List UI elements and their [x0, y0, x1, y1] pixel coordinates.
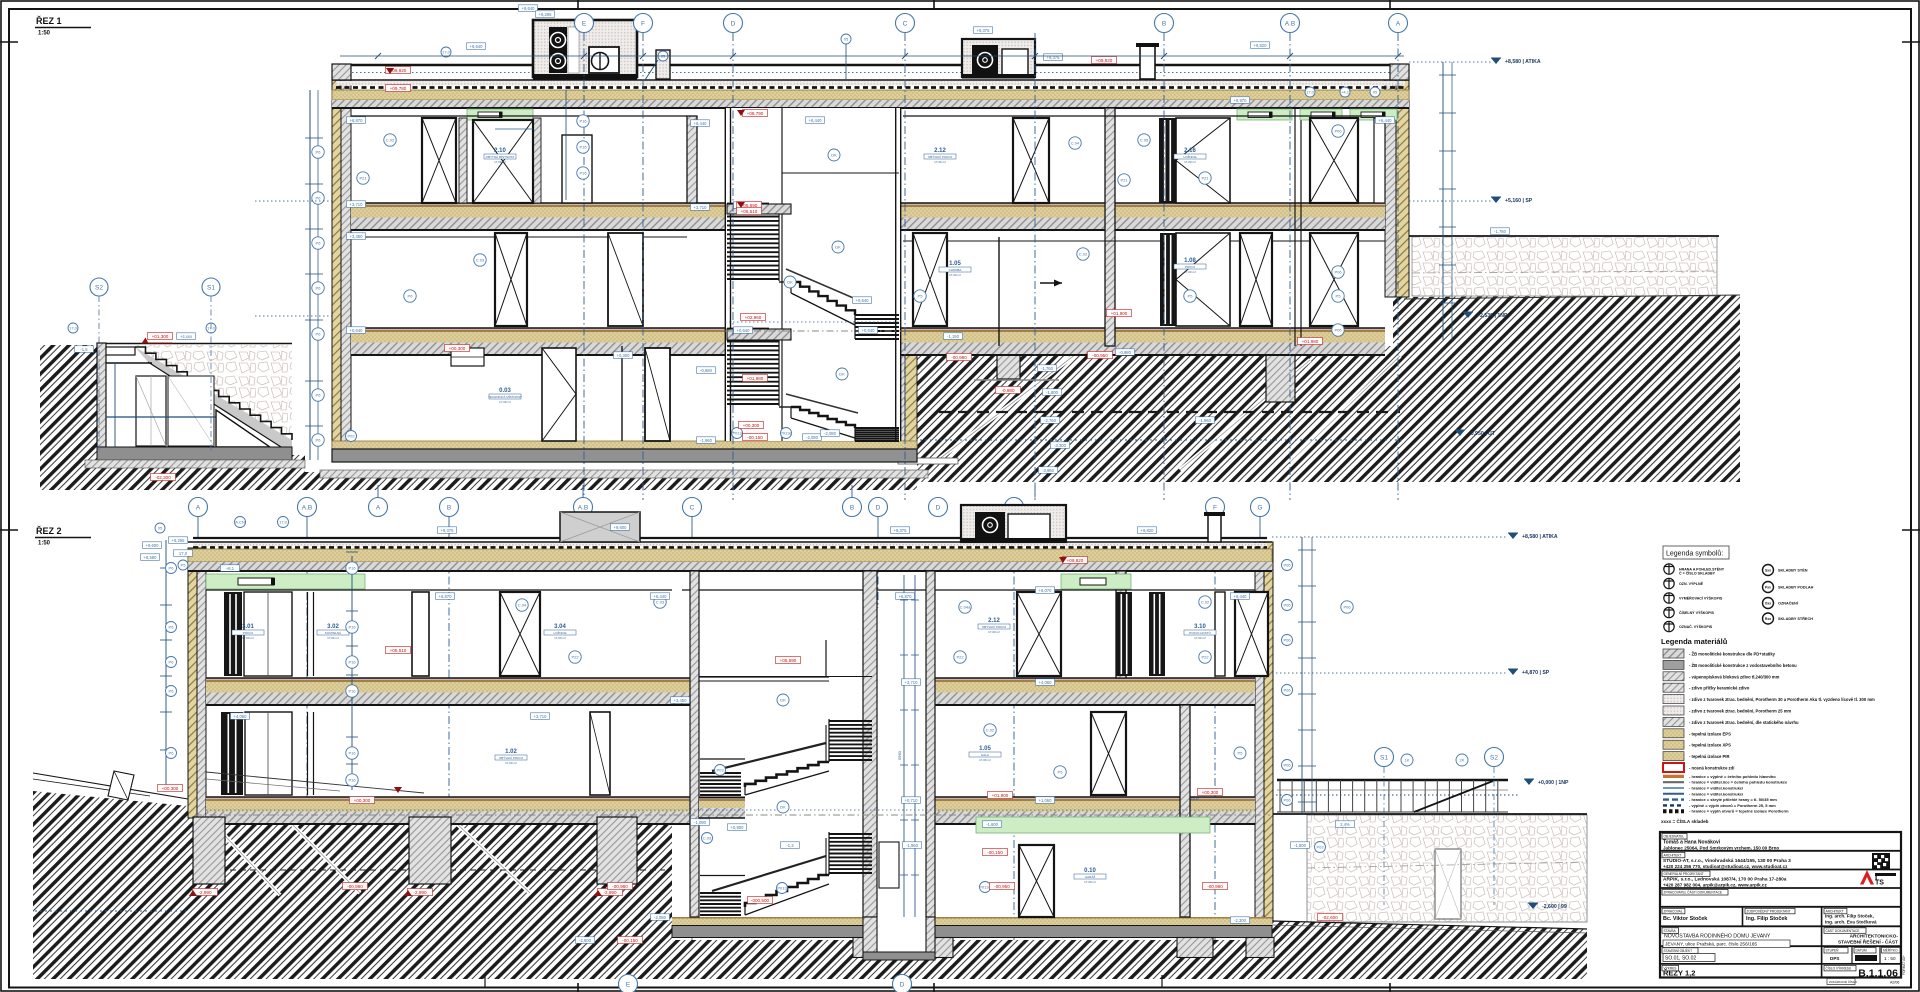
- svg-text:1:50: 1:50: [38, 541, 51, 547]
- svg-text:-2,990: -2,990: [198, 890, 211, 895]
- svg-text:17,0: 17,0: [179, 551, 188, 556]
- svg-text:- zdivo příčky keramické zdivo: - zdivo příčky keramické zdivo: [1689, 686, 1750, 691]
- svg-text:S2: S2: [95, 284, 103, 291]
- svg-text:LOŽNICE: LOŽNICE: [553, 630, 566, 635]
- svg-text:P06: P06: [1343, 605, 1351, 610]
- svg-text:+01,900: +01,900: [992, 793, 1009, 798]
- svg-text:05: 05: [844, 37, 849, 42]
- svg-text:-2,080: -2,080: [654, 915, 667, 920]
- svg-text:SKLADBY PODLAH: SKLADBY PODLAH: [1778, 586, 1814, 590]
- svg-text:3.04: 3.04: [554, 624, 566, 630]
- svg-text:- hranice = viditel.konstrukcí: - hranice = viditel.konstrukcí: [1689, 786, 1744, 791]
- svg-text:OBÝVACÍ POKOJ: OBÝVACÍ POKOJ: [499, 756, 524, 760]
- svg-text:+6,870: +6,870: [350, 118, 364, 123]
- svg-text:DK: DK: [780, 698, 786, 703]
- svg-text:P6: P6: [316, 332, 322, 337]
- svg-text:P06: P06: [1334, 328, 1342, 333]
- svg-text:17,00 m²: 17,00 m²: [505, 761, 517, 765]
- svg-text:ČÁST DOKUMENTACE: ČÁST DOKUMENTACE: [1826, 928, 1860, 933]
- svg-text:+3,710: +3,710: [905, 680, 919, 685]
- svg-text:+0,710: +0,710: [905, 798, 919, 803]
- svg-text:17,00 m²: 17,00 m²: [1184, 270, 1196, 274]
- svg-text:DK: DK: [835, 245, 841, 250]
- svg-text:- ŽB monolitické konstrukce z: - ŽB monolitické konstrukce z vodostaveb…: [1689, 663, 1797, 668]
- svg-text:Jablonec 25064, Pod Smrkovým v: Jablonec 25064, Pod Smrkovým vrchem, 150…: [1663, 846, 1779, 851]
- svg-text:D: D: [936, 504, 941, 511]
- svg-text:+9,640: +9,640: [470, 44, 484, 49]
- svg-text:+9,375: +9,375: [441, 528, 455, 533]
- svg-text:+01,980: +01,980: [747, 376, 764, 381]
- svg-text:+8,580: +8,580: [144, 555, 158, 560]
- svg-text:P02: P02: [347, 434, 355, 439]
- svg-text:ČÍSLO VÝKRESU: ČÍSLO VÝKRESU: [1826, 966, 1852, 971]
- svg-text:+01,900: +01,900: [1111, 311, 1128, 316]
- svg-text:1.08: 1.08: [1184, 258, 1196, 264]
- svg-text:- výplně = výplň otvorů = Poro: - výplně = výplň otvorů = Porotherm 25, …: [1689, 803, 1776, 808]
- svg-text:POKOJ HOSTŮ: POKOJ HOSTŮ: [1189, 630, 1211, 635]
- svg-text:1.05: 1.05: [979, 746, 991, 752]
- svg-text:1500: 1500: [1190, 796, 1200, 801]
- svg-text:DATUM: DATUM: [1856, 949, 1867, 953]
- svg-text:VYMĚŘOVACÍ VÝŠKOPIS: VYMĚŘOVACÍ VÝŠKOPIS: [1679, 596, 1723, 601]
- svg-text:+9,640: +9,640: [522, 6, 536, 11]
- svg-text:+09,820: +09,820: [1067, 558, 1084, 563]
- svg-text:-2,990: -2,990: [413, 890, 426, 895]
- svg-text:P013: P013: [732, 431, 742, 436]
- svg-text:STUPEŇ: STUPEŇ: [1826, 949, 1840, 953]
- svg-text:+6,440: +6,440: [1379, 118, 1393, 123]
- svg-text:DK: DK: [831, 153, 837, 158]
- svg-text:P06: P06: [1283, 688, 1291, 693]
- svg-text:P6: P6: [169, 625, 175, 630]
- svg-text:SO.01, SO.02: SO.01, SO.02: [1665, 956, 1696, 962]
- svg-text:SKLADBY STŘECH: SKLADBY STŘECH: [1778, 616, 1813, 621]
- svg-text:-0,980: -0,980: [1001, 388, 1014, 393]
- svg-text:+6,870: +6,870: [899, 594, 913, 599]
- svg-text:- tepelná izolace EPS: - tepelná izolace EPS: [1689, 731, 1731, 736]
- svg-text:+9,600: +9,600: [146, 543, 160, 548]
- svg-text:+420 287 982 004, arpik@arpik.: +420 287 982 004, arpik@arpik.cz, www.ar…: [1663, 883, 1767, 888]
- svg-text:B: B: [1162, 20, 1166, 27]
- svg-text:D: D: [876, 504, 881, 511]
- svg-text:+9,820: +9,820: [1254, 43, 1268, 48]
- svg-text:2K: 2K: [1460, 758, 1465, 763]
- svg-text:Sxx: Sxx: [1765, 569, 1771, 573]
- svg-text:+4,xxx: +4,xxx: [180, 334, 193, 339]
- svg-text:C.02: C.02: [986, 728, 995, 733]
- svg-text:P5: P5: [918, 294, 924, 299]
- svg-text:-00,980: -00,980: [347, 884, 363, 889]
- svg-text:-1,3: -1,3: [786, 843, 794, 848]
- svg-text:1:50: 1:50: [38, 31, 51, 37]
- svg-text:+6,970: +6,970: [1234, 98, 1248, 103]
- svg-text:C: C: [690, 504, 695, 511]
- svg-text:-00,980: -00,980: [612, 884, 628, 889]
- svg-text:+9,375: +9,375: [977, 28, 991, 33]
- svg-text:A.B: A.B: [578, 504, 588, 511]
- svg-text:DK: DK: [839, 372, 845, 377]
- svg-text:2.10: 2.10: [494, 148, 506, 154]
- svg-text:B.1.1.06: B.1.1.06: [1858, 968, 1898, 980]
- svg-text:CHODBA: CHODBA: [949, 268, 962, 272]
- svg-text:+00,300: +00,300: [743, 423, 760, 428]
- svg-text:P6: P6: [316, 438, 322, 443]
- svg-text:OZNAČ. VÝŠKOPIS: OZNAČ. VÝŠKOPIS: [1679, 624, 1713, 629]
- svg-text:HALA: HALA: [981, 753, 989, 757]
- svg-text:P16: P16: [348, 660, 356, 665]
- svg-text:P06: P06: [1334, 129, 1342, 134]
- svg-text:- tepelná izolace XPS: - tepelná izolace XPS: [1689, 743, 1731, 748]
- svg-text:Legenda materiálů: Legenda materiálů: [1661, 637, 1728, 646]
- svg-text:05: 05: [158, 526, 163, 531]
- svg-text:- hranice = viditel.konstrukcí: - hranice = viditel.konstrukcí: [1689, 791, 1744, 796]
- svg-text:-02,600: -02,600: [1322, 915, 1338, 920]
- svg-text:P013a: P013a: [780, 431, 792, 436]
- svg-text:-00,980: -00,980: [1207, 884, 1223, 889]
- svg-text:ZPRACOVATEL ČÁSTI DOKUMENTACE: ZPRACOVATEL ČÁSTI DOKUMENTACE: [1664, 890, 1723, 895]
- svg-text:- nosná konstrukce zdí: - nosná konstrukce zdí: [1689, 766, 1735, 771]
- svg-text:Bc. Viktor Stoček: Bc. Viktor Stoček: [1663, 916, 1707, 922]
- svg-text:+00,300: +00,300: [1202, 790, 1219, 795]
- svg-text:5960: 5960: [897, 750, 902, 760]
- svg-text:GARÁŽ: GARÁŽ: [1085, 874, 1096, 879]
- svg-text:POKOJ: POKOJ: [243, 631, 254, 635]
- svg-text:+05,510: +05,510: [741, 209, 758, 214]
- svg-text:P5: P5: [1188, 294, 1194, 299]
- svg-text:GENERÁLNÍ PROJEKTANT: GENERÁLNÍ PROJEKTANT: [1664, 872, 1704, 876]
- svg-text:ARCHITEKT: ARCHITEKT: [1664, 854, 1682, 858]
- svg-text:+0,900: +0,900: [731, 825, 745, 830]
- svg-text:+9,295: +9,295: [172, 538, 186, 543]
- svg-text:D: D: [900, 981, 905, 988]
- svg-text:- hranice = výplň otvorů = tep: - hranice = výplň otvorů = tepelné izola…: [1689, 809, 1789, 814]
- svg-text:P16: P16: [348, 625, 356, 630]
- svg-text:+6,440: +6,440: [1234, 594, 1248, 599]
- svg-text:P16: P16: [579, 171, 587, 176]
- svg-text:+02,960: +02,960: [745, 315, 762, 320]
- svg-text:P06: P06: [1283, 563, 1291, 568]
- svg-text:17,00 m²: 17,00 m²: [979, 758, 991, 762]
- svg-text:P6: P6: [316, 286, 322, 291]
- svg-text:2.12: 2.12: [934, 148, 946, 154]
- svg-text:P16: P16: [579, 119, 587, 124]
- svg-text:- zdivo z tvarovek ztrac. bedn: - zdivo z tvarovek ztrac. bednění, Porot…: [1689, 709, 1791, 714]
- svg-text:Legenda symbolů:: Legenda symbolů:: [1666, 550, 1723, 558]
- svg-text:+4,870 | SP: +4,870 | SP: [1522, 670, 1550, 676]
- svg-text:P6: P6: [169, 566, 175, 571]
- svg-text:+0,640: +0,640: [862, 328, 876, 333]
- svg-text:17,00 m²: 17,00 m²: [1184, 160, 1196, 164]
- svg-text:-2,600 | 99: -2,600 | 99: [1542, 904, 1567, 910]
- svg-text:C.04a: C.04a: [960, 605, 971, 610]
- svg-text:C.03: C.03: [476, 258, 485, 263]
- svg-text:17,0: 17,0: [69, 326, 78, 331]
- svg-text:17,00 m²: 17,00 m²: [988, 630, 1000, 634]
- svg-text:P6: P6: [169, 751, 175, 756]
- svg-text:A2/06: A2/06: [1890, 981, 1899, 985]
- svg-text:D: D: [731, 20, 736, 27]
- svg-text:Č = ČÍSLO SKLADBY: Č = ČÍSLO SKLADBY: [1679, 571, 1716, 576]
- svg-text:JEVANY, ulice Pražská, parc. č: JEVANY, ulice Pražská, parc. číslo 256/1…: [1665, 942, 1757, 948]
- svg-text:MĚŘÍTKO: MĚŘÍTKO: [1883, 948, 1898, 953]
- svg-text:B: B: [447, 504, 451, 511]
- svg-text:-0,680: -0,680: [700, 368, 713, 373]
- svg-text:ŘEZY 1,2: ŘEZY 1,2: [1663, 969, 1695, 978]
- svg-text:Oxx: Oxx: [1765, 602, 1772, 606]
- svg-text:05: 05: [1373, 90, 1378, 95]
- svg-text:17,00 m²: 17,00 m²: [949, 273, 961, 277]
- svg-text:-2,760: -2,760: [1044, 418, 1057, 423]
- svg-text:+9,375: +9,375: [1047, 55, 1061, 60]
- svg-text:-3,300: -3,300: [1054, 443, 1067, 448]
- svg-text:Ing. arch. Filip Stoček,: Ing. arch. Filip Stoček,: [1825, 914, 1874, 919]
- svg-text:+9,820: +9,820: [1141, 528, 1155, 533]
- svg-text:+8,1: +8,1: [226, 566, 235, 571]
- svg-text:ČÍSELNÝ VÝŠKOPIS: ČÍSELNÝ VÝŠKOPIS: [1679, 610, 1715, 615]
- svg-text:+3,450: +3,450: [350, 234, 364, 239]
- svg-text:LOŽNICE: LOŽNICE: [1183, 154, 1196, 159]
- svg-text:A.B: A.B: [302, 504, 312, 511]
- svg-text:2,4%: 2,4%: [1340, 822, 1350, 827]
- svg-text:+420 224 256 770, studioat@stu: +420 224 256 770, studioat@studioat.cz, …: [1663, 864, 1788, 869]
- svg-text:P6: P6: [408, 294, 414, 299]
- svg-text:-1,090: -1,090: [694, 820, 707, 825]
- svg-text:+3,710: +3,710: [534, 714, 548, 719]
- svg-text:Ing. Filip Stoček: Ing. Filip Stoček: [1746, 916, 1787, 922]
- svg-text:SKLADBY STĚN: SKLADBY STĚN: [1778, 568, 1808, 573]
- svg-text:F: F: [641, 20, 645, 27]
- svg-text:Ing. arch. Eva Stočková: Ing. arch. Eva Stočková: [1825, 920, 1877, 925]
- svg-text:17,00 m²: 17,00 m²: [499, 400, 511, 404]
- svg-text:+05,510: +05,510: [390, 648, 407, 653]
- svg-text:P06: P06: [1283, 763, 1291, 768]
- svg-text:xxxx = ČÍSLA skladeb: xxxx = ČÍSLA skladeb: [1661, 817, 1709, 824]
- svg-text:0.10: 0.10: [1084, 868, 1096, 874]
- svg-text:P5: P5: [1238, 751, 1244, 756]
- svg-text:OZN. VÝPLNĚ: OZN. VÝPLNĚ: [1679, 581, 1704, 586]
- svg-text:+0,000 | 1NP: +0,000 | 1NP: [1538, 780, 1569, 786]
- svg-text:-2,600: -2,600: [579, 938, 592, 943]
- svg-text:B: B: [850, 504, 854, 511]
- svg-text:+00,300: +00,300: [162, 786, 179, 791]
- svg-text:-00,950: -00,950: [1092, 353, 1108, 358]
- svg-text:-2,080: -2,080: [824, 431, 837, 436]
- svg-text:STAVEBNÍ OBJEKT: STAVEBNÍ OBJEKT: [1664, 949, 1693, 953]
- svg-text:-00,150: -00,150: [987, 850, 1003, 855]
- svg-text:ZODPOVĚDNÝ PROJEKTANT: ZODPOVĚDNÝ PROJEKTANT: [1747, 909, 1791, 914]
- svg-text:P5: P5: [1058, 770, 1064, 775]
- svg-text:- vápenopísková bloková zdivo: - vápenopísková bloková zdivo tl.240/300…: [1689, 674, 1780, 679]
- svg-text:TS: TS: [1875, 880, 1884, 887]
- svg-text:DK: DK: [780, 805, 786, 810]
- svg-text:OBYTNÁ MÍSTNOST: OBYTNÁ MÍSTNOST: [486, 155, 515, 159]
- svg-text:P6: P6: [316, 393, 322, 398]
- svg-text:-1,800: -1,800: [1046, 390, 1059, 395]
- svg-text:KOUPELNA: KOUPELNA: [325, 631, 341, 635]
- svg-text:C.04: C.04: [518, 603, 527, 608]
- svg-text:P21: P21: [359, 176, 367, 181]
- svg-text:-1,150: -1,150: [947, 334, 960, 339]
- svg-text:P06: P06: [1283, 798, 1291, 803]
- svg-text:+8,580 | ATIKA: +8,580 | ATIKA: [1505, 59, 1541, 65]
- svg-text:DPS: DPS: [1830, 956, 1839, 961]
- svg-text:-1,960: -1,960: [1199, 418, 1212, 423]
- svg-text:-1,600: -1,600: [986, 822, 999, 827]
- svg-text:+1,060: +1,060: [1039, 798, 1053, 803]
- svg-text:OBÝVACÍ POKOJ: OBÝVACÍ POKOJ: [928, 155, 953, 159]
- svg-text:+9,295: +9,295: [539, 12, 553, 17]
- svg-text:+6,070: +6,070: [1039, 588, 1053, 593]
- svg-text:A: A: [1396, 20, 1401, 27]
- svg-text:- hranice = viditel.líce = čel: - hranice = viditel.líce = čelního pohle…: [1689, 780, 1788, 785]
- svg-text:+4,1: +4,1: [1341, 90, 1350, 95]
- svg-text:FORMÁT A0+: FORMÁT A0+: [1902, 955, 1906, 975]
- svg-text:NOVOSTAVBA RODINNÉHO DOMU JEVA: NOVOSTAVBA RODINNÉHO DOMU JEVANY: [1664, 933, 1771, 940]
- svg-text:-2,080: -2,080: [806, 435, 819, 440]
- svg-text:P16: P16: [348, 689, 356, 694]
- svg-text:P6: P6: [169, 689, 175, 694]
- svg-text:-1,760: -1,760: [1041, 366, 1054, 371]
- svg-text:Pxx: Pxx: [1765, 586, 1771, 590]
- svg-text:P013: P013: [777, 886, 787, 891]
- svg-text:+9,375: +9,375: [894, 528, 908, 533]
- svg-text:P16: P16: [348, 778, 356, 783]
- svg-text:- ŽB monolitické konstrukce dl: - ŽB monolitické konstrukce dle PD+stati…: [1689, 652, 1776, 657]
- svg-text:+9,600: +9,600: [614, 525, 628, 530]
- svg-text:-1,760: -1,760: [1494, 229, 1507, 234]
- svg-text:C.03: C.03: [656, 600, 665, 605]
- svg-text:- hranice = skryté přilehlé hr: - hranice = skryté přilehlé hrany = tl. …: [1689, 797, 1777, 802]
- svg-text:+09,820: +09,820: [1096, 58, 1113, 63]
- svg-text:-00,150: -00,150: [747, 435, 763, 440]
- svg-text:+09,780: +09,780: [390, 86, 407, 91]
- svg-text:3.01: 3.01: [242, 624, 254, 630]
- svg-text:P5: P5: [181, 563, 187, 568]
- svg-text:C: C: [903, 20, 908, 27]
- svg-text:2.16: 2.16: [1184, 148, 1196, 154]
- svg-text:17,00 m²: 17,00 m²: [494, 160, 506, 164]
- svg-text:+0,640: +0,640: [737, 328, 751, 333]
- svg-text:P06: P06: [1283, 603, 1291, 608]
- svg-text:P16: P16: [348, 751, 356, 756]
- svg-text:S1: S1: [207, 284, 215, 291]
- svg-text:DK: DK: [787, 280, 793, 285]
- svg-text:-1,960: -1,960: [700, 438, 713, 443]
- svg-text:+6,440: +6,440: [809, 118, 823, 123]
- svg-text:ARCHITEKTONICKO-: ARCHITEKTONICKO-: [1850, 934, 1899, 940]
- svg-text:17,0: 17,0: [279, 520, 288, 525]
- svg-text:17,0: 17,0: [1306, 90, 1315, 95]
- svg-text:P5: P5: [1336, 294, 1342, 299]
- svg-text:P06: P06: [1334, 270, 1342, 275]
- svg-text:ŘEZ 2: ŘEZ 2: [36, 525, 62, 536]
- svg-text:P21: P21: [1201, 176, 1209, 181]
- svg-text:17,00 m²: 17,00 m²: [1194, 636, 1206, 640]
- svg-text:POKOJ: POKOJ: [1185, 265, 1196, 269]
- svg-text:17,00 m²: 17,00 m²: [554, 636, 566, 640]
- svg-text:Rxx: Rxx: [1765, 617, 1771, 621]
- svg-text:+5,160 | SP: +5,160 | SP: [1505, 198, 1533, 204]
- svg-text:P06: P06: [1283, 638, 1291, 643]
- svg-text:+4,060: +4,060: [1039, 680, 1053, 685]
- svg-text:2.12: 2.12: [988, 618, 1000, 624]
- svg-text:C.02: C.02: [386, 138, 395, 143]
- svg-text:-2,300: -2,300: [1234, 918, 1247, 923]
- svg-text:P22: P22: [1201, 655, 1209, 660]
- svg-text:A: A: [376, 504, 381, 511]
- svg-text:-3,960: -3,960: [1042, 468, 1055, 473]
- svg-text:F: F: [1213, 504, 1217, 511]
- svg-text:+0,640: +0,640: [350, 328, 364, 333]
- svg-text:OZNAČENÍ: OZNAČENÍ: [1778, 601, 1799, 606]
- svg-text:17,00 m²: 17,00 m²: [1084, 880, 1096, 884]
- svg-text:- tepelná izolace PIR: - tepelná izolace PIR: [1689, 754, 1730, 759]
- svg-text:P16: P16: [348, 566, 356, 571]
- svg-text:P21: P21: [1120, 178, 1128, 183]
- svg-text:0.03: 0.03: [499, 388, 511, 394]
- svg-text:17,00 m²: 17,00 m²: [934, 160, 946, 164]
- svg-text:-000,500: -000,500: [751, 898, 770, 903]
- svg-text:C.02: C.02: [1079, 252, 1088, 257]
- svg-text:-1,960: -1,960: [906, 843, 919, 848]
- svg-text:-2,990: -2,990: [603, 890, 616, 895]
- svg-text:A.CN: A.CN: [235, 520, 245, 525]
- svg-text:C.02: C.02: [1201, 600, 1210, 605]
- svg-text:3.10: 3.10: [1194, 624, 1206, 630]
- svg-text:+08,790: +08,790: [747, 111, 764, 116]
- svg-text:P6: P6: [316, 196, 322, 201]
- svg-text:+6,440: +6,440: [654, 594, 668, 599]
- svg-text:+01,980: +01,980: [1302, 339, 1319, 344]
- svg-text:+00,300: +00,300: [449, 346, 466, 351]
- svg-text:17,00 m²: 17,00 m²: [242, 636, 254, 640]
- svg-text:P22: P22: [956, 655, 964, 660]
- svg-text:3.02: 3.02: [327, 624, 339, 630]
- svg-text:-02,300: -02,300: [155, 475, 171, 480]
- svg-text:+05,690: +05,690: [780, 658, 797, 663]
- svg-text:P03: P03: [716, 768, 724, 773]
- svg-text:- hranice = výplně = čelního p: - hranice = výplně = čelního pohledu hla…: [1689, 774, 1776, 779]
- svg-text:P22: P22: [571, 655, 579, 660]
- svg-text:P6: P6: [316, 241, 322, 246]
- svg-text:-1,5: -1,5: [80, 347, 88, 352]
- svg-text:S2: S2: [1490, 754, 1498, 761]
- svg-text:-1,800: -1,800: [1294, 843, 1307, 848]
- svg-text:C.04: C.04: [1071, 141, 1080, 146]
- svg-text:+2,530 | 1NP: +2,530 | 1NP: [1477, 313, 1508, 319]
- svg-text:+6,440: +6,440: [694, 121, 708, 126]
- svg-text:-00,980: -00,980: [951, 355, 967, 360]
- svg-text:P6: P6: [169, 660, 175, 665]
- svg-text:+3,710: +3,710: [350, 202, 364, 207]
- svg-text:+0,640: +0,640: [856, 298, 870, 303]
- svg-text:+00,300: +00,300: [354, 798, 371, 803]
- svg-text:+4,060: +4,060: [234, 714, 248, 719]
- svg-text:P03: P03: [1316, 845, 1324, 850]
- svg-text:C.05: C.05: [1140, 138, 1149, 143]
- svg-text:+0,300: +0,300: [617, 353, 631, 358]
- svg-text:E: E: [582, 20, 587, 27]
- svg-text:1.02: 1.02: [505, 749, 517, 755]
- svg-text:G: G: [1257, 504, 1262, 511]
- svg-text:STAVBA: STAVBA: [1664, 929, 1677, 933]
- svg-text:P16: P16: [579, 145, 587, 150]
- svg-text:C.03: C.03: [703, 836, 712, 841]
- svg-text:1.05: 1.05: [949, 261, 961, 267]
- svg-text:- zdivo z tvarovek ztrac. bedn: - zdivo z tvarovek ztrac. bednění, Porot…: [1689, 697, 1875, 702]
- svg-text:1K: 1K: [1405, 758, 1410, 763]
- svg-text:17,0: 17,0: [442, 50, 451, 55]
